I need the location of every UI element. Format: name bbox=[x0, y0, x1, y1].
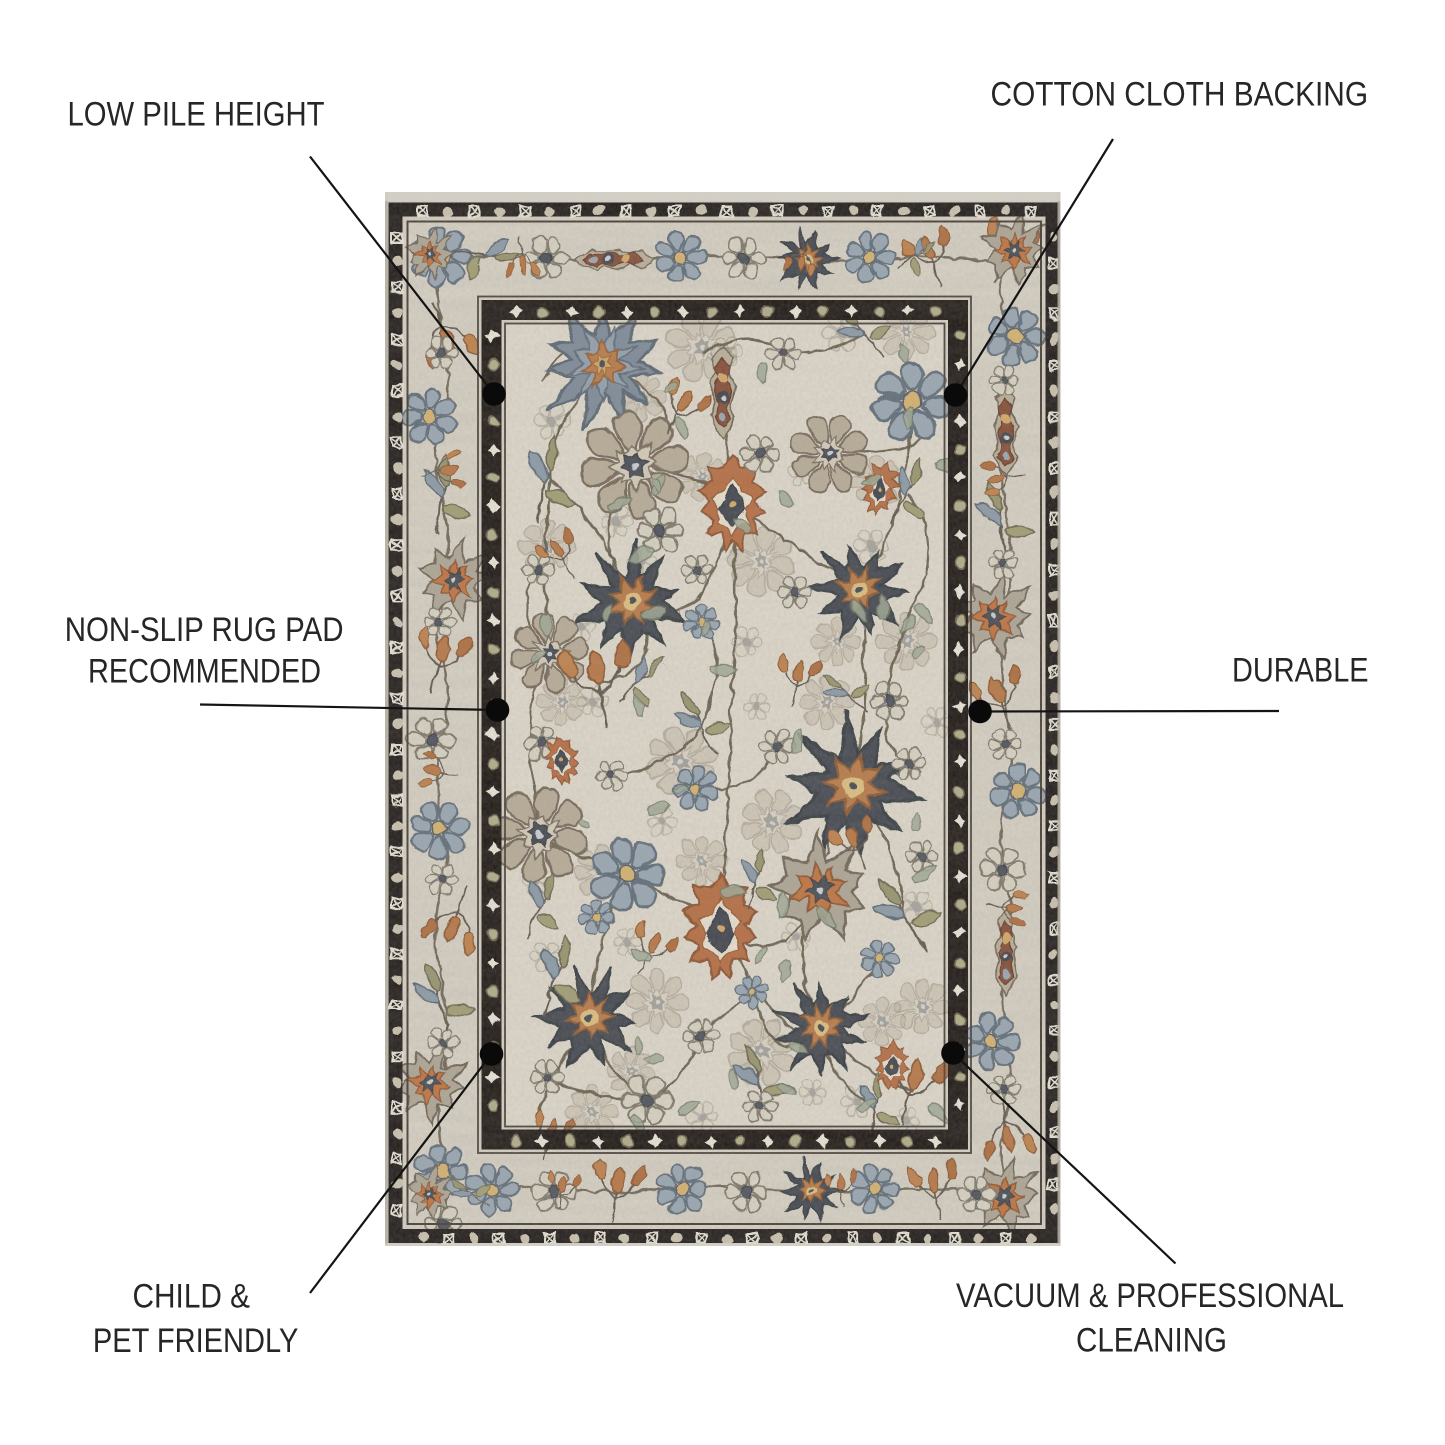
svg-text:PET FRIENDLY: PET FRIENDLY bbox=[93, 1322, 299, 1360]
svg-text:LOW PILE HEIGHT: LOW PILE HEIGHT bbox=[68, 96, 325, 134]
svg-text:COTTON CLOTH BACKING: COTTON CLOTH BACKING bbox=[991, 76, 1369, 114]
svg-text:CHILD &: CHILD & bbox=[133, 1278, 251, 1316]
svg-text:NON-SLIP RUG PAD: NON-SLIP RUG PAD bbox=[65, 611, 344, 649]
svg-text:VACUUM & PROFESSIONAL: VACUUM & PROFESSIONAL bbox=[956, 1277, 1344, 1315]
svg-text:DURABLE: DURABLE bbox=[1232, 652, 1369, 690]
svg-text:CLEANING: CLEANING bbox=[1076, 1321, 1227, 1359]
svg-text:RECOMMENDED: RECOMMENDED bbox=[88, 652, 321, 690]
